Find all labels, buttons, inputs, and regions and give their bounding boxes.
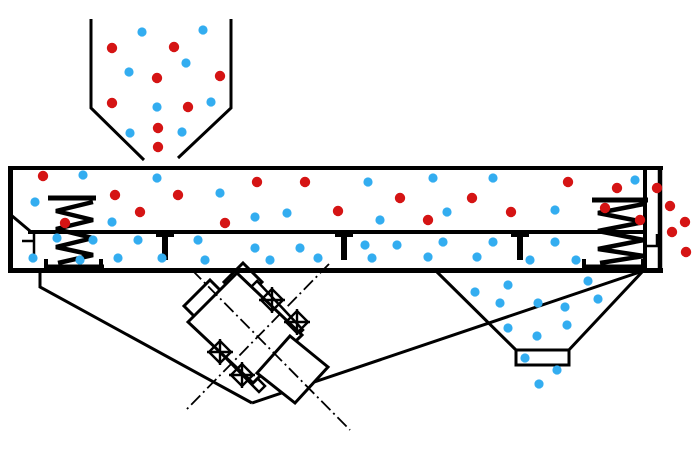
fine-particle — [198, 25, 207, 34]
fine-particle — [503, 280, 512, 289]
right-step-bracket — [647, 234, 657, 246]
coarse-particle — [635, 215, 645, 225]
fine-particle — [88, 235, 97, 244]
coarse-particle — [215, 71, 225, 81]
fine-particle — [367, 253, 376, 262]
fine-particle — [520, 353, 529, 362]
fine-particle — [193, 235, 202, 244]
fine-particle — [472, 252, 481, 261]
fine-particle — [495, 298, 504, 307]
fine-particle — [375, 215, 384, 224]
fine-particle — [78, 170, 87, 179]
fine-particle — [571, 255, 580, 264]
vibrating-screen-diagram — [0, 0, 700, 460]
fine-particle — [107, 217, 116, 226]
coarse-particle — [107, 43, 117, 53]
coarse-particle — [600, 203, 610, 213]
coarse-particle — [681, 247, 691, 257]
fine-particle — [28, 253, 37, 262]
right-support-spring — [582, 200, 648, 269]
fine-particle — [525, 255, 534, 264]
fine-particle — [250, 243, 259, 252]
fine-particle — [550, 237, 559, 246]
particles-hopper-fine — [124, 25, 215, 137]
fine-particle — [360, 240, 369, 249]
coarse-particle — [665, 201, 675, 211]
particles-hopper-coarse — [107, 42, 225, 152]
fine-particle — [363, 177, 372, 186]
particles-under-screen-fine — [28, 233, 580, 264]
coarse-particle — [135, 207, 145, 217]
fine-particle — [392, 240, 401, 249]
coarse-particle — [60, 218, 70, 228]
coarse-particle — [107, 98, 117, 108]
particles-overflow-coarse — [665, 201, 691, 257]
coarse-particle — [612, 183, 622, 193]
fine-particle — [560, 302, 569, 311]
coarse-particle — [300, 177, 310, 187]
coarse-particle — [667, 227, 677, 237]
coarse-particle — [38, 171, 48, 181]
fine-particle — [177, 127, 186, 136]
fine-particle — [630, 175, 639, 184]
fine-particle — [562, 320, 571, 329]
particles-deck-coarse — [38, 171, 662, 228]
fine-particle — [124, 67, 133, 76]
fine-particle — [423, 252, 432, 261]
coarse-particle — [680, 217, 690, 227]
coarse-particle — [173, 190, 183, 200]
feed-deflector — [11, 215, 30, 231]
coarse-particle — [220, 218, 230, 228]
coarse-particle — [333, 206, 343, 216]
fine-particle — [250, 212, 259, 221]
hopper-left-wall — [91, 19, 144, 160]
fine-particle — [470, 287, 479, 296]
fine-particle — [30, 197, 39, 206]
fine-particle — [488, 173, 497, 182]
fine-particle — [533, 298, 542, 307]
fine-particle — [181, 58, 190, 67]
feed-hopper — [91, 19, 231, 160]
hopper-right-wall — [178, 19, 231, 158]
fine-particle — [295, 243, 304, 252]
vibration-motor — [184, 263, 328, 403]
fine-particle — [428, 173, 437, 182]
coarse-particle — [252, 177, 262, 187]
fine-particle — [583, 276, 592, 285]
coarse-particle — [395, 193, 405, 203]
fine-particle — [534, 379, 543, 388]
fines-discharge-funnel — [437, 271, 643, 365]
fine-particle — [152, 173, 161, 182]
coarse-particle — [652, 183, 662, 193]
fine-particle — [200, 255, 209, 264]
fine-particle — [282, 208, 291, 217]
fine-particle — [550, 205, 559, 214]
fine-particle — [113, 253, 122, 262]
fine-particle — [133, 235, 142, 244]
fine-particle — [442, 207, 451, 216]
fine-particle — [157, 253, 166, 262]
mesh-support — [335, 232, 353, 260]
coarse-particle — [183, 102, 193, 112]
fine-particle — [215, 188, 224, 197]
coarse-particle — [152, 73, 162, 83]
fine-particle — [552, 365, 561, 374]
fine-particle — [313, 253, 322, 262]
fine-particle — [438, 237, 447, 246]
coarse-particle — [467, 193, 477, 203]
fine-particle — [206, 97, 215, 106]
coarse-particle — [153, 142, 163, 152]
coarse-particle — [110, 190, 120, 200]
coarse-particle — [423, 215, 433, 225]
fine-particle — [503, 323, 512, 332]
fine-particle — [52, 233, 61, 242]
mesh-support — [511, 232, 529, 260]
fine-particle — [488, 237, 497, 246]
fine-particle — [265, 255, 274, 264]
fine-particle — [532, 331, 541, 340]
fine-particle — [593, 294, 602, 303]
fine-particle — [125, 128, 134, 137]
fine-particle — [152, 102, 161, 111]
fine-particle — [137, 27, 146, 36]
fine-particle — [75, 255, 84, 264]
coarse-particle — [563, 177, 573, 187]
coarse-particle — [153, 123, 163, 133]
left-step-bracket — [22, 234, 34, 254]
chute-frame — [40, 270, 640, 403]
coarse-particle — [169, 42, 179, 52]
coarse-particle — [506, 207, 516, 217]
